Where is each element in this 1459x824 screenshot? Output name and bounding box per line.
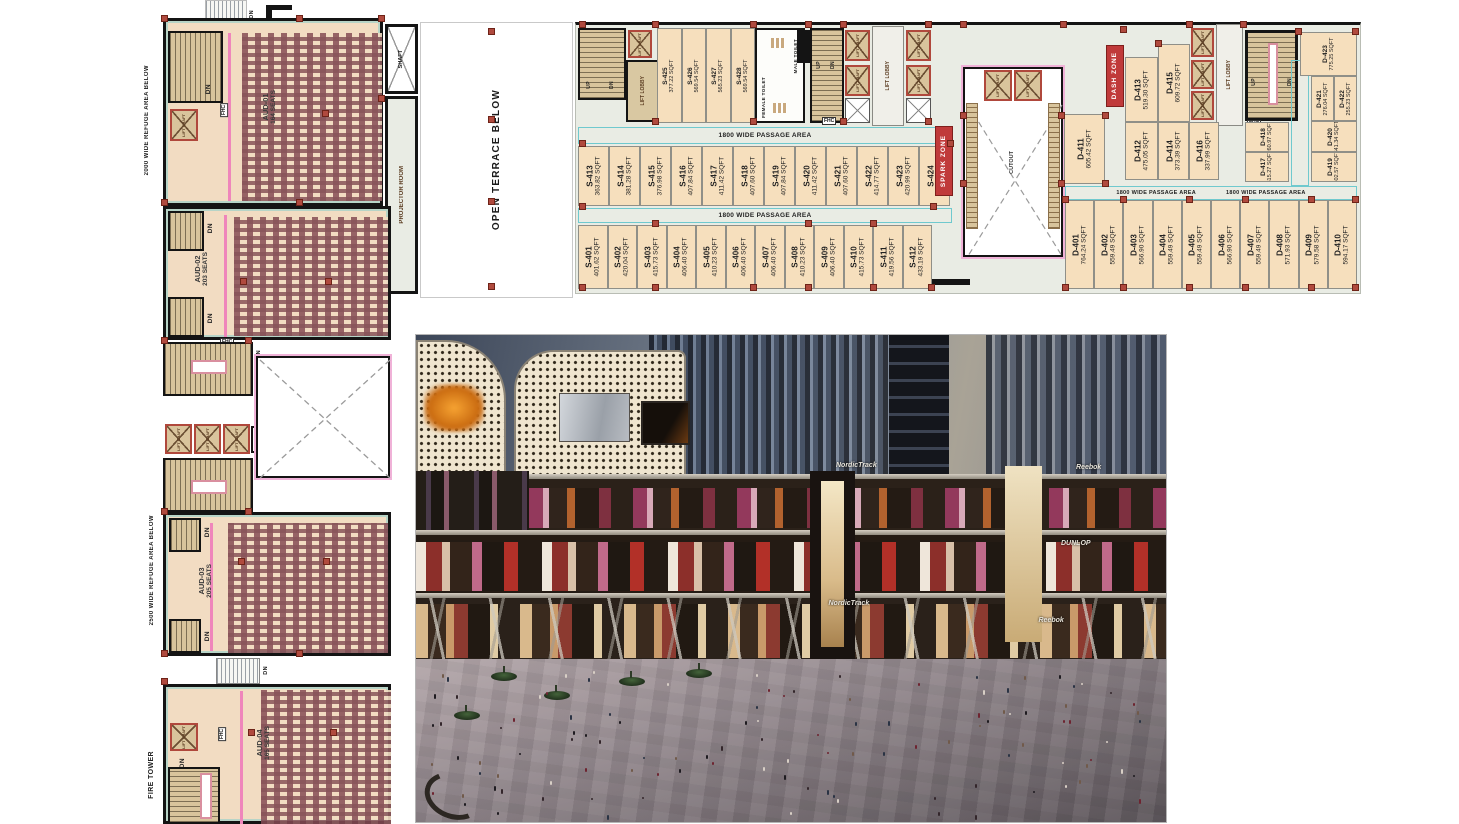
dunlop-sign: DUNLOP xyxy=(1061,540,1091,547)
person-figure xyxy=(462,794,464,798)
unit-D-419: D-419402.57 SQFT xyxy=(1311,152,1357,182)
lift-shaft-box: LIFT SHAFT xyxy=(845,65,870,96)
planter xyxy=(619,677,645,686)
column-marker xyxy=(947,140,954,147)
unit-label: S-408410.23 SQFT xyxy=(791,237,808,276)
column-marker xyxy=(322,110,329,117)
unit-S-427: S-427565.23 SQFT xyxy=(706,28,731,123)
person-figure xyxy=(768,689,770,692)
column-marker xyxy=(1062,284,1069,291)
aud02-label: AUD-02203 SEATS xyxy=(193,252,209,286)
column-marker xyxy=(161,508,168,515)
seating-aud04 xyxy=(261,690,391,824)
reebok-sign: Reebok xyxy=(1076,464,1101,471)
auditorium-aud-02: DN DN AUD-02203 SEATS xyxy=(163,206,391,340)
unit-S-407: S-407406.40 SQFT xyxy=(755,225,785,289)
lit-core-right xyxy=(1005,466,1043,641)
passage-band-top: 1800 WIDE PASSAGE AREA xyxy=(578,127,952,144)
unit-label: S-425377.22 SQFT xyxy=(662,59,676,92)
column-marker xyxy=(488,28,495,35)
unit-row-s425-s428: S-425377.22 SQFTS-426569.54 SQFTS-427565… xyxy=(657,28,755,123)
person-figure xyxy=(1139,720,1141,723)
unit-S-426: S-426569.54 SQFT xyxy=(682,28,707,123)
lift-lobby-left: LIFT LOBBY xyxy=(626,60,660,122)
person-figure xyxy=(1025,711,1027,715)
aud04-label: AUD-04165 SEATS xyxy=(255,726,271,760)
unit-S-417: S-417411.42 SQFT xyxy=(702,146,733,206)
stair-aud02-top xyxy=(168,211,204,251)
lift-shaft-box: LIFT SHAFT xyxy=(628,30,652,58)
unit-label: D-422255.23 SQFT xyxy=(1339,82,1353,115)
person-figure xyxy=(1139,799,1141,803)
dn-label: DN xyxy=(608,78,617,92)
person-figure xyxy=(494,786,496,791)
refuge-label-2500: 2500 WIDE REFUGE AREA BELOW xyxy=(145,508,159,633)
column-marker xyxy=(1155,40,1162,47)
aud03-label: AUD-03205 SEATS xyxy=(197,564,213,598)
storefront-windows xyxy=(416,542,1166,591)
unit-label: D-418260.97 SQFT xyxy=(1260,122,1274,152)
unit-D-403: D-403566.90 SQFT xyxy=(1123,200,1152,289)
unit-D-407: D-407559.49 SQFT xyxy=(1240,200,1269,289)
unit-row-d401-d410: D-401764.24 SQFTD-402559.49 SQFTD-403566… xyxy=(1065,200,1357,289)
column-marker xyxy=(1186,196,1193,203)
unit-S-411: S-411419.56 SQFT xyxy=(873,225,903,289)
lift-shaft-box: LIFT SHAFT xyxy=(1191,91,1214,120)
unit-S-423: S-423420.99 SQFT xyxy=(888,146,919,206)
planter xyxy=(491,672,517,681)
storefront-band-1f xyxy=(416,598,1166,661)
person-figure xyxy=(883,752,885,756)
unit-label: S-406406.40 SQFT xyxy=(732,237,749,276)
unit-D-412: D-412475.05 SQFT xyxy=(1125,122,1158,180)
column-marker xyxy=(579,203,586,210)
person-figure xyxy=(783,695,785,697)
column-marker xyxy=(488,283,495,290)
person-figure xyxy=(938,812,940,816)
open-terrace: OPEN TERRACE BELOW xyxy=(420,22,573,298)
unit-label: S-419407.84 SQFT xyxy=(771,156,788,195)
column-marker xyxy=(378,15,385,22)
unit-label: S-412433.19 SQFT xyxy=(909,237,926,276)
person-figure xyxy=(497,774,499,778)
person-figure xyxy=(442,674,444,678)
unit-label: D-411605.42 SQFT xyxy=(1076,129,1093,168)
unit-label: D-406566.90 SQFT xyxy=(1217,225,1234,264)
unit-row-s413-s424: S-413363.82 SQFTS-414381.28 SQFTS-415376… xyxy=(578,146,950,206)
person-figure xyxy=(675,757,677,760)
person-figure xyxy=(519,753,521,755)
column-marker xyxy=(238,558,245,565)
column-marker xyxy=(1352,196,1359,203)
column-marker xyxy=(161,15,168,22)
fhc-chip: FHC xyxy=(822,117,836,125)
unit-D-401: D-401764.24 SQFT xyxy=(1065,200,1094,289)
unit-label: S-423420.99 SQFT xyxy=(895,156,912,195)
person-figure xyxy=(1062,762,1064,764)
dn-label: DN xyxy=(206,309,216,327)
unit-D-418: D-418260.97 SQFT xyxy=(1245,122,1289,152)
stair-retail-center xyxy=(810,28,844,123)
column-marker xyxy=(1102,112,1109,119)
column-marker xyxy=(750,118,757,125)
unit-label: S-403415.73 SQFT xyxy=(643,237,660,276)
duct-shaft xyxy=(797,30,810,63)
plaza-floor xyxy=(416,659,1166,822)
dash-zone-label: DASH ZONE xyxy=(1107,46,1123,106)
person-figure xyxy=(607,815,609,820)
person-figure xyxy=(833,795,835,799)
unit-S-405: S-405410.23 SQFT xyxy=(696,225,726,289)
person-figure xyxy=(975,815,977,820)
column-marker xyxy=(750,284,757,291)
column-marker xyxy=(652,220,659,227)
lift-shaft-box: LIFT SHAFT xyxy=(170,109,198,141)
person-figure xyxy=(609,713,611,717)
lit-core-slot xyxy=(821,481,844,647)
person-figure xyxy=(440,722,442,726)
unit-label: S-411419.56 SQFT xyxy=(879,237,896,276)
unit-label: D-414373.39 SQFT xyxy=(1165,131,1182,170)
dn-label: DN xyxy=(262,662,271,678)
unit-label: S-421407.60 SQFT xyxy=(833,156,850,195)
unit-S-413: S-413363.82 SQFT xyxy=(578,146,609,206)
stair-fire-tower xyxy=(168,767,220,824)
person-figure xyxy=(570,715,572,720)
unit-label: D-419402.57 SQFT xyxy=(1327,152,1341,182)
unit-label: S-420411.42 SQFT xyxy=(802,157,819,196)
storefront-band-2f xyxy=(416,535,1166,596)
lift-shaft-box: LIFT SHAFT xyxy=(165,424,192,454)
passage-band-vertical xyxy=(1291,60,1309,186)
person-figure xyxy=(599,740,601,745)
unit-D-409: D-409579.58 SQFT xyxy=(1299,200,1328,289)
unit-label: D-401764.24 SQFT xyxy=(1071,225,1088,264)
person-figure xyxy=(550,781,552,786)
column-marker xyxy=(840,118,847,125)
unit-row-s401-s412: S-401401.62 SQFTS-402420.04 SQFTS-403415… xyxy=(578,225,932,289)
unit-label: D-421276.04 SQFT xyxy=(1316,82,1330,115)
lift-shaft-box: LIFT SHAFT xyxy=(1191,60,1214,89)
person-figure xyxy=(934,797,936,799)
person-figure xyxy=(593,671,595,674)
unit-S-425: S-425377.22 SQFT xyxy=(657,28,682,123)
toilet-fixtures xyxy=(771,38,785,48)
aud01-label: AUD-01164 SEATS xyxy=(261,90,277,124)
unit-label: S-422414.77 SQFT xyxy=(864,156,881,195)
unit-S-418: S-418407.60 SQFT xyxy=(733,146,764,206)
person-figure xyxy=(756,706,758,708)
column-marker xyxy=(1058,112,1065,119)
person-figure xyxy=(585,768,587,772)
passage-band-mid: 1800 WIDE PASSAGE AREA xyxy=(578,208,952,223)
unit-label: D-408571.93 SQFT xyxy=(1276,225,1293,264)
column-marker xyxy=(652,284,659,291)
person-figure xyxy=(817,734,819,737)
unit-D-406: D-406566.90 SQFT xyxy=(1211,200,1240,289)
person-figure xyxy=(1137,711,1139,715)
column-marker xyxy=(378,95,385,102)
unit-label: S-413363.82 SQFT xyxy=(585,156,602,195)
unit-label: S-414381.28 SQFT xyxy=(616,156,633,195)
cutout-x-lines xyxy=(258,358,392,480)
unit-label: D-405559.49 SQFT xyxy=(1188,225,1205,264)
person-figure xyxy=(888,721,890,726)
person-figure xyxy=(457,756,459,760)
person-figure xyxy=(721,746,723,751)
dn-label: DN xyxy=(206,219,216,237)
unit-label: D-409579.58 SQFT xyxy=(1305,225,1322,264)
column-marker xyxy=(330,729,337,736)
column-marker xyxy=(1062,196,1069,203)
auditorium-aud-04: LIFT SHAFT DN AUD-04165 SEATS xyxy=(163,684,391,824)
person-figure xyxy=(1106,741,1108,743)
unit-S-422: S-422414.77 SQFT xyxy=(857,146,888,206)
person-figure xyxy=(585,734,587,737)
person-figure xyxy=(827,790,829,795)
lift-shaft-box: LIFT SHAFT xyxy=(906,65,931,96)
unit-D-405: D-405559.49 SQFT xyxy=(1182,200,1211,289)
column-marker xyxy=(161,678,168,685)
column-marker xyxy=(925,21,932,28)
lift-shaft-box: LIFT SHAFT xyxy=(170,723,198,751)
lift-lobby-right: LIFT LOBBY xyxy=(1216,24,1243,126)
column-marker xyxy=(1352,284,1359,291)
column-marker xyxy=(1242,284,1249,291)
person-figure xyxy=(983,690,985,695)
unit-S-406: S-406406.40 SQFT xyxy=(726,225,756,289)
person-figure xyxy=(1090,759,1092,761)
unit-label: D-417315.27 SQFT xyxy=(1260,152,1274,182)
unit-S-415: S-415376.98 SQFT xyxy=(640,146,671,206)
person-figure xyxy=(434,694,436,699)
column-marker xyxy=(488,116,495,123)
person-figure xyxy=(976,676,978,678)
person-figure xyxy=(1007,688,1009,692)
person-figure xyxy=(1110,692,1112,694)
unit-D-417: D-417315.27 SQFT xyxy=(1245,152,1289,182)
person-figure xyxy=(1079,780,1081,785)
person-figure xyxy=(1063,720,1065,723)
column-marker xyxy=(161,199,168,206)
up-label: UP xyxy=(1250,75,1259,89)
stair-landing xyxy=(191,480,227,494)
unit-label: D-407559.49 SQFT xyxy=(1246,225,1263,264)
lift-shaft-box: LIFT SHAFT xyxy=(984,70,1012,101)
person-figure xyxy=(679,769,681,773)
column-marker xyxy=(925,118,932,125)
column-marker xyxy=(930,203,937,210)
unit-D-413: D-413519.30 SQFT xyxy=(1125,57,1158,122)
billboard-poster xyxy=(559,393,630,442)
unit-label: S-418407.60 SQFT xyxy=(740,156,757,195)
person-figure xyxy=(827,752,829,754)
person-figure xyxy=(978,713,980,718)
column-marker xyxy=(245,337,252,344)
person-figure xyxy=(849,698,851,701)
column-marker xyxy=(296,650,303,657)
person-figure xyxy=(546,692,548,695)
unit-label: S-426569.54 SQFT xyxy=(687,59,701,92)
unit-label: S-427565.23 SQFT xyxy=(711,59,725,92)
person-figure xyxy=(975,784,977,789)
unit-label: D-423775.25 SQFT xyxy=(1322,37,1336,70)
column-marker xyxy=(1186,21,1193,28)
auditorium-aud-01: LIFT SHAFT DN AUD-01164 SEATS xyxy=(163,18,383,206)
column-marker xyxy=(161,337,168,344)
up-label: UP xyxy=(815,58,824,72)
cinema-screen-aud01 xyxy=(228,33,231,201)
unit-label: S-415376.98 SQFT xyxy=(647,156,664,195)
fire-tower-label: FIRE TOWER xyxy=(144,737,158,812)
person-figure xyxy=(1003,710,1005,714)
column-marker xyxy=(325,278,332,285)
stair-mid-top xyxy=(163,342,253,396)
person-figure xyxy=(852,752,854,756)
orange-signage-glow xyxy=(424,384,484,433)
person-figure xyxy=(667,683,669,686)
person-figure xyxy=(1022,743,1024,747)
person-figure xyxy=(793,690,795,693)
spark-zone-label: SPARK ZONE xyxy=(936,127,952,195)
person-figure xyxy=(948,740,950,744)
unit-label: D-416337.99 SQFT xyxy=(1196,131,1213,170)
person-figure xyxy=(573,731,575,735)
lift-shaft-box: LIFT SHAFT xyxy=(1191,28,1214,57)
unit-D-402: D-402559.49 SQFT xyxy=(1094,200,1123,289)
unit-D-408: D-408571.93 SQFT xyxy=(1269,200,1298,289)
unit-D-414: D-414373.39 SQFT xyxy=(1158,122,1189,180)
column-marker xyxy=(296,199,303,206)
nordictrack-sign: NordicTrack xyxy=(836,462,877,469)
unit-label: D-413519.30 SQFT xyxy=(1133,70,1150,109)
unit-D-422: D-422255.23 SQFT xyxy=(1334,76,1357,121)
column-marker xyxy=(245,508,252,515)
lift-lobby-center: LIFT LOBBY xyxy=(872,26,904,126)
unit-S-409: S-409406.40 SQFT xyxy=(814,225,844,289)
person-figure xyxy=(619,721,621,724)
seating-aud02 xyxy=(234,217,388,336)
person-figure xyxy=(588,678,590,682)
person-figure xyxy=(761,738,763,741)
person-figure xyxy=(432,724,434,727)
column-marker xyxy=(1120,196,1127,203)
unit-label: S-409406.40 SQFT xyxy=(820,237,837,276)
unit-S-414: S-414381.28 SQFT xyxy=(609,146,640,206)
column-marker xyxy=(1308,284,1315,291)
column-marker xyxy=(1120,26,1127,33)
person-figure xyxy=(1086,764,1088,768)
person-figure xyxy=(706,755,708,760)
column-marker xyxy=(579,284,586,291)
unit-S-420: S-420411.42 SQFT xyxy=(795,146,826,206)
reebok-sign-lower: Reebok xyxy=(1039,617,1064,624)
column-marker xyxy=(960,112,967,119)
female-toilet-label: FEMALE TOILET xyxy=(759,77,769,117)
person-figure xyxy=(500,727,502,729)
refuge-label-2000: 2000 WIDE REFUGE AREA BELOW xyxy=(140,38,154,203)
column-marker xyxy=(1295,28,1302,35)
person-figure xyxy=(571,738,573,740)
stair-mid-bottom xyxy=(163,458,253,512)
person-figure xyxy=(1065,704,1067,708)
person-figure xyxy=(790,812,792,814)
lift-shaft-box: LIFT SHAFT xyxy=(223,424,250,454)
person-figure xyxy=(763,767,765,771)
unit-label: S-402420.04 SQFT xyxy=(614,237,631,276)
column-marker xyxy=(928,284,935,291)
truss-structure xyxy=(416,598,1166,661)
floor-plan-sheet: 2000 WIDE REFUGE AREA BELOW DN LIFT SHAF… xyxy=(0,0,1459,821)
unit-S-404: S-404406.40 SQFT xyxy=(667,225,697,289)
planter xyxy=(686,669,712,678)
person-figure xyxy=(631,769,633,773)
planter xyxy=(454,711,480,720)
column-marker xyxy=(805,284,812,291)
lift-shaft-box: LIFT SHAFT xyxy=(1014,70,1042,101)
person-figure xyxy=(918,683,920,686)
column-marker xyxy=(652,21,659,28)
column-marker xyxy=(1242,196,1249,203)
person-figure xyxy=(1069,720,1071,724)
stair-landing xyxy=(191,360,227,374)
unit-D-420: D-420341.34 SQFT xyxy=(1311,121,1357,152)
person-figure xyxy=(479,772,481,775)
unit-label: S-404406.40 SQFT xyxy=(673,237,690,276)
person-figure xyxy=(837,799,839,802)
unit-S-410: S-410415.73 SQFT xyxy=(844,225,874,289)
person-figure xyxy=(1024,676,1026,680)
column-marker xyxy=(323,558,330,565)
column-marker xyxy=(1240,21,1247,28)
person-figure xyxy=(1121,769,1123,774)
unit-label: D-410594.17 SQFT xyxy=(1334,225,1351,264)
fhc-chip: FHC xyxy=(218,727,226,741)
unit-label: D-404559.49 SQFT xyxy=(1159,225,1176,264)
person-figure xyxy=(712,762,714,765)
void-box xyxy=(845,98,870,123)
unit-S-419: S-419407.84 SQFT xyxy=(764,146,795,206)
stair-aud03-bottom xyxy=(169,619,201,653)
unit-D-404: D-404559.49 SQFT xyxy=(1153,200,1182,289)
unit-D-423: D-423775.25 SQFT xyxy=(1300,32,1357,76)
lift-shaft-box: LIFT SHAFT xyxy=(845,30,870,61)
person-figure xyxy=(643,757,645,760)
unit-label: D-412475.05 SQFT xyxy=(1133,131,1150,170)
stair-landing xyxy=(200,773,212,819)
column-marker xyxy=(805,220,812,227)
person-figure xyxy=(479,761,481,765)
unit-label: D-415609.72 SQFT xyxy=(1166,63,1183,102)
column-marker xyxy=(1308,196,1315,203)
person-figure xyxy=(987,720,989,723)
unit-label: D-402559.49 SQFT xyxy=(1100,225,1117,264)
led-screen xyxy=(641,401,690,445)
unit-D-421: D-421276.04 SQFT xyxy=(1311,76,1334,121)
column-marker xyxy=(870,220,877,227)
seating-aud03 xyxy=(228,523,388,653)
person-figure xyxy=(1133,775,1135,777)
column-marker xyxy=(805,21,812,28)
column-marker xyxy=(1352,28,1359,35)
glass-curtain-wall-right xyxy=(986,335,1166,481)
unit-label: S-410415.73 SQFT xyxy=(850,237,867,276)
column-marker xyxy=(240,278,247,285)
stair-aud02-bottom xyxy=(168,297,204,337)
person-figure xyxy=(787,759,789,763)
unit-S-408: S-408410.23 SQFT xyxy=(785,225,815,289)
unit-D-416: D-416337.99 SQFT xyxy=(1189,122,1219,180)
